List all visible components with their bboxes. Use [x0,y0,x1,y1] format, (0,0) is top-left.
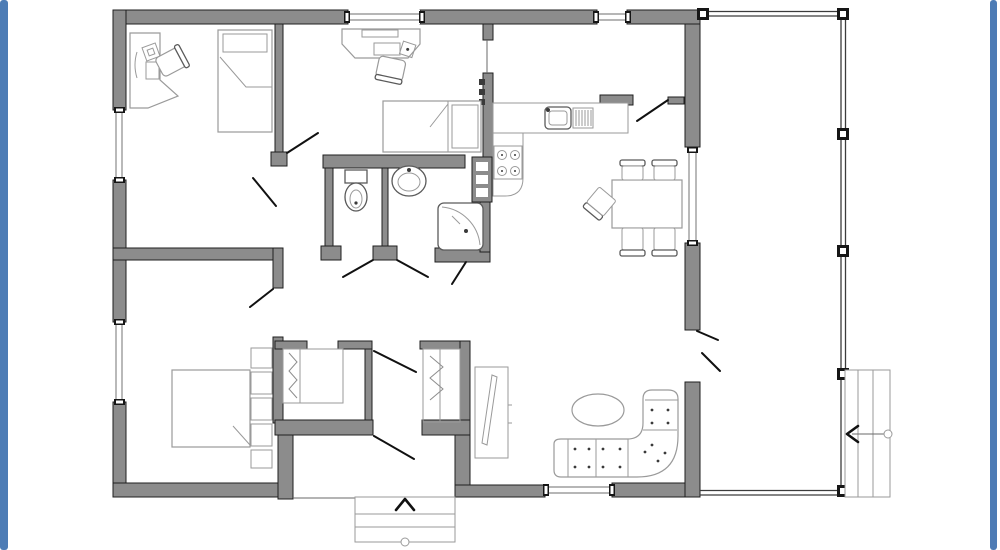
door-swing [250,289,273,307]
frame-left-bar [0,0,8,550]
wall-segment [455,433,470,487]
wall-segment [668,97,684,104]
toilet [345,170,367,211]
washbasin [392,166,426,196]
wall-segment [685,382,700,497]
clothes-rail-icon [430,356,443,400]
wall-segment [325,168,333,248]
wall-segment [685,24,700,147]
window [344,10,425,24]
frame-right-bar [990,0,997,550]
counter-leg [493,133,523,196]
wall-segment [275,341,307,349]
closet-right [423,349,460,422]
wall-segment [420,341,465,349]
entry-steps [355,497,455,546]
door-swing [287,133,318,153]
wall-segment [113,10,126,110]
wall-segment [275,24,283,155]
window [113,319,126,405]
dining-chair [620,228,645,256]
wall-segment [273,248,283,288]
kitchen [493,103,628,196]
door-swing [374,351,416,372]
kitchen-sink [545,107,571,129]
window [685,147,700,246]
wall-segment [113,483,293,497]
door-swing [702,353,720,371]
porch [697,8,892,497]
dining-chair [652,228,677,256]
porch-posts [697,8,849,497]
door-swing [343,260,373,277]
closet-left [283,349,343,403]
door-swing [697,331,718,340]
shelf-column [251,348,272,468]
floor-plan [0,0,1000,550]
window [113,107,126,183]
window [543,483,615,497]
side-stairs [845,370,892,497]
wall-end-cap [373,246,397,260]
wall-segment [365,349,372,425]
wall-segment [278,435,293,499]
office-bedroom [130,30,272,132]
door-swing [253,178,276,206]
clothes-rail-icon [289,353,297,398]
wall-segment [455,485,545,497]
living-room [554,390,678,477]
dining-table [612,180,682,228]
wall-segment [460,341,470,425]
wall-segment [627,10,700,24]
wall-end-cap [271,152,287,166]
mirror-cabinet [475,367,512,458]
door-swing [452,262,466,284]
wall-segment [323,155,465,168]
wall-segment [382,168,388,248]
dining-chair [583,187,617,221]
wall-segment [338,341,372,349]
double-bed [172,370,250,447]
porch-edge-bottom [700,491,837,496]
wall-end-cap [321,246,341,260]
shower-cabin [438,203,483,250]
dining-chair [620,160,645,180]
stairs-marker [884,430,892,438]
window [593,10,631,24]
wall-segment [685,243,700,330]
wall-segment [483,24,493,40]
wall-segment [275,420,373,435]
dining-area [583,160,682,256]
porch-edge-top [709,12,837,17]
bathroom [345,166,483,250]
dining-chair [652,160,677,180]
single-bed [218,30,272,132]
bedroom-2 [342,29,481,152]
door-swing [637,100,668,121]
appliance-column [472,157,492,202]
wall-segment [113,10,348,24]
door-swing [374,436,414,459]
wall-segment [483,73,493,157]
wall-segment [420,10,597,24]
coffee-table [572,394,624,426]
wall-segment [113,248,278,260]
master-bedroom [172,348,272,468]
single-bed [383,101,481,152]
office-chair [375,56,406,85]
door-swing [397,260,428,277]
wall-segment [273,337,283,423]
entry-marker [401,538,409,546]
floor-plan-canvas [0,0,1000,550]
